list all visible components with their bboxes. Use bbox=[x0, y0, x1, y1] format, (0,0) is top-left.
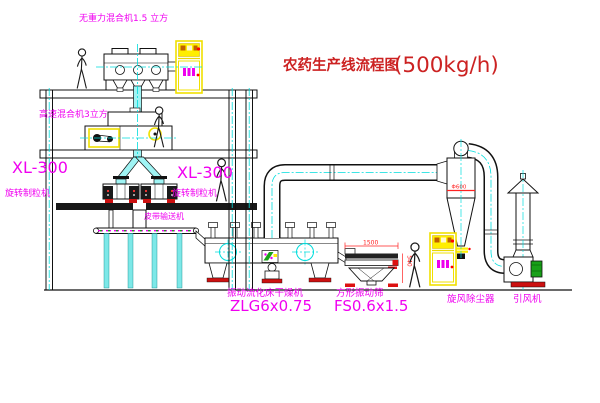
square-sieve: 1500 540 bbox=[345, 240, 413, 288]
page-title-capacity: (500kg/h) bbox=[394, 53, 499, 78]
cad-flow-diagram: Φ600 1500 540 bbox=[0, 0, 600, 403]
granulator-name-center: 旋转制粒机 bbox=[172, 187, 217, 199]
cyclone-label: 旋风除尘器 bbox=[447, 293, 495, 305]
sieve-width-dim: 1500 bbox=[363, 240, 378, 247]
granulator-1 bbox=[103, 176, 139, 203]
gravity-mixer-label: 无重力混合机1.5 立方 bbox=[79, 12, 168, 24]
belt-conveyor-label: 皮带输送机 bbox=[144, 211, 184, 221]
dryer-brand-emblem bbox=[262, 251, 278, 263]
fan-motor bbox=[531, 261, 542, 277]
sieve-model-label: FS0.6x1.5 bbox=[334, 297, 408, 315]
cyclone-dim-label: Φ600 bbox=[452, 185, 467, 191]
granulator-model-center: XL-300 bbox=[177, 163, 233, 182]
exhaust-duct bbox=[272, 161, 447, 238]
belt-conveyor bbox=[93, 228, 206, 288]
flow-diagram-svg: Φ600 1500 540 bbox=[0, 0, 600, 403]
control-cabinet-2 bbox=[430, 233, 456, 285]
high-speed-mixer-label: 高速混合机3立方 bbox=[39, 108, 108, 120]
person-top-floor bbox=[77, 49, 86, 89]
fan-base bbox=[511, 282, 545, 287]
support-leg bbox=[109, 210, 113, 228]
granulator-name-left: 旋转制粒机 bbox=[5, 187, 50, 199]
feed-y-pipe bbox=[117, 157, 163, 178]
dryer-model-label: ZLG6x0.75 bbox=[230, 297, 312, 315]
fan-label: 引风机 bbox=[513, 293, 542, 305]
induced-draft-fan bbox=[504, 257, 545, 287]
page-title: 农药生产线流程图 bbox=[282, 56, 399, 74]
granulator-model-left: XL-300 bbox=[12, 158, 68, 177]
